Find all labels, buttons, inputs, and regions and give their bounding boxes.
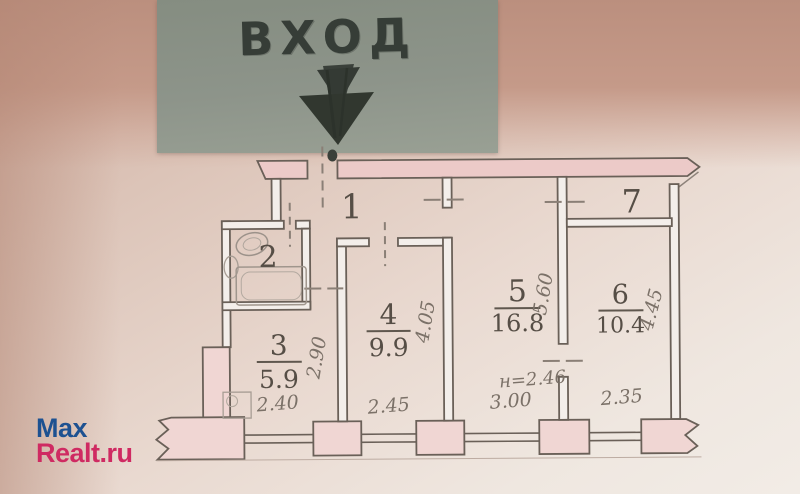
dim-bottom-2: 2.45 [366, 394, 411, 419]
room4-area: 9.9 [369, 333, 409, 362]
wall-room3-4 [337, 238, 347, 421]
dim-room5-width: 5.60 [529, 271, 558, 316]
bath-bottom-wall [222, 302, 310, 311]
ceiling-height-note: н=2.46 [498, 367, 566, 393]
top-wall-left [257, 161, 307, 179]
room3-area: 5.9 [259, 365, 299, 394]
room7-label: 7 [621, 182, 642, 220]
left-stub-wall [272, 179, 281, 225]
bath-top-wall [296, 221, 310, 229]
room5-number: 5 [508, 274, 527, 309]
bottom-pier [539, 420, 589, 454]
watermark: Max Realt.ru [36, 416, 133, 466]
hall-stub-wall [443, 178, 452, 208]
bottom-pier [416, 421, 464, 455]
floorplan-photo: ВХОД [0, 0, 800, 494]
wall-room6-7 [567, 218, 672, 227]
wall-room4-5 [443, 238, 453, 421]
bath-top-wall [222, 221, 284, 229]
dim-room4-width: 4.05 [411, 299, 440, 345]
watermark-realt: Realt.ru [36, 441, 133, 466]
dim-bottom-3: 3.00 [489, 389, 533, 414]
dim-bottom-1: 2.40 [255, 391, 300, 416]
room3-number: 3 [270, 329, 288, 362]
room2-label: 2 [258, 240, 277, 275]
dim-room6-width: 4.45 [635, 286, 667, 333]
left-wall [222, 221, 231, 347]
dim-bottom-4: 2.35 [599, 385, 644, 410]
bottom-left-pier [156, 417, 244, 460]
room4-number: 4 [379, 298, 397, 331]
dimension-labels: 2.90 4.05 5.60 4.45 2.40 2.45 3.00 2.35 … [254, 270, 669, 419]
arrow-tip [327, 149, 337, 161]
room4-top-wall [337, 238, 369, 246]
dim-room3-width: 2.90 [302, 335, 331, 381]
top-wall-right [337, 158, 699, 179]
bottom-right-pier [641, 419, 698, 453]
room1-label: 1 [341, 187, 363, 227]
left-pier [203, 347, 231, 421]
bottom-pier [313, 421, 361, 455]
bathtub-inner [241, 272, 301, 300]
room6-number: 6 [612, 279, 629, 310]
